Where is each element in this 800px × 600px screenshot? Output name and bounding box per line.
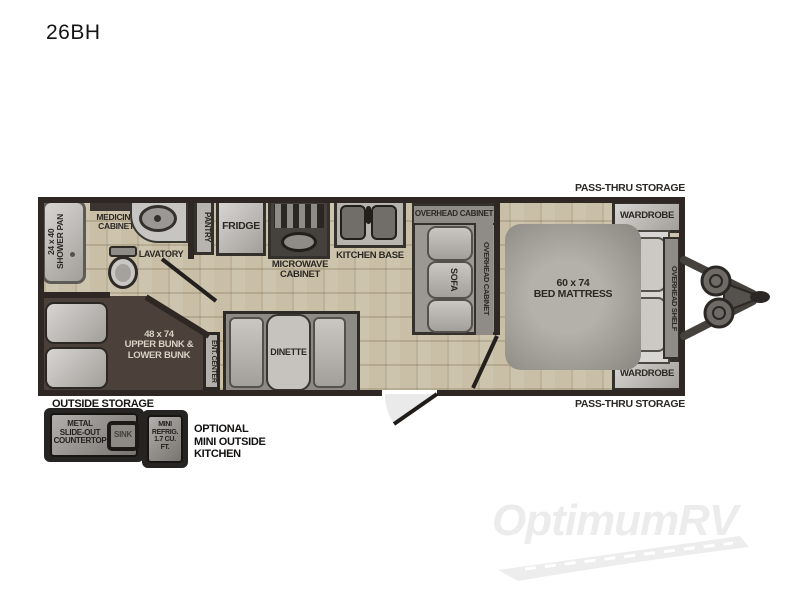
dinette-bench-right <box>313 317 346 388</box>
wardrobe-top-label: WARDROBE <box>612 211 682 221</box>
pantry-label: PANTRY <box>197 203 211 252</box>
bunk-mattress-lower <box>45 347 108 389</box>
wall-bedroom <box>494 197 500 335</box>
ent-center-label: ENT. CENTER <box>206 336 217 386</box>
wall-bottom-right <box>437 390 685 396</box>
hitch-bar-top <box>684 260 753 294</box>
pass-thru-storage-bottom-label: PASS-THRU STORAGE <box>560 399 685 410</box>
wall-right <box>679 197 685 396</box>
mini-refrig-label: MINI REFRIG. 1.7 CU. FT. <box>147 421 183 451</box>
kitchen-sink-right <box>371 205 397 240</box>
watermark-brand: OptimumRV <box>492 496 772 546</box>
bunk-mattress-upper <box>45 302 108 344</box>
outside-kitchen-note: OPTIONAL MINI OUTSIDE KITCHEN <box>194 423 304 461</box>
lavatory-sink-drain <box>154 215 161 222</box>
shower-pan-label: 24 x 40 SHOWER PAN <box>47 206 81 278</box>
kitchen-faucet <box>366 206 371 224</box>
toilet-seat <box>115 264 131 282</box>
floorplan-image: 26BH 24 x 40 SHOWER PAN MEDICINE CABINET… <box>0 0 800 600</box>
kitchen-base-label: KITCHEN BASE <box>330 251 410 261</box>
propane-tank-1 <box>702 267 730 295</box>
wall-bath-bunk <box>38 292 110 298</box>
overhead-cabinet-top-label: OVERHEAD CABINET <box>410 210 498 219</box>
microwave-cabinet-label: MICROWAVE CABINET <box>248 260 352 281</box>
entry-door <box>394 394 437 424</box>
outside-sink-label: SINK <box>107 431 139 440</box>
dinette-bench-left <box>229 317 264 388</box>
entry-door-swing <box>385 394 437 424</box>
sofa-label: SOFA <box>442 252 458 308</box>
hitch-plate <box>724 283 762 312</box>
stove-top <box>274 204 324 228</box>
shower-drain <box>70 252 75 257</box>
wall-top <box>38 197 685 203</box>
pass-thru-storage-top-label: PASS-THRU STORAGE <box>560 183 685 194</box>
wardrobe-bottom-label: WARDROBE <box>612 369 682 379</box>
dinette-label: DINETTE <box>263 348 314 358</box>
overhead-cabinet-side-label: OVERHEAD CABINET <box>477 226 490 332</box>
propane-tank-2 <box>705 299 733 327</box>
model-title: 26BH <box>46 22 101 45</box>
fridge-label: FRIDGE <box>216 221 266 232</box>
lavatory-label: LAVATORY <box>130 250 192 260</box>
outside-countertop-label: METAL SLIDE-OUT COUNTERTOP <box>50 420 110 446</box>
wall-bathroom <box>188 197 194 259</box>
bunk-label: 48 x 74 UPPER BUNK & LOWER BUNK <box>110 330 208 361</box>
bed-label: 60 x 74 BED MATTRESS <box>505 278 641 301</box>
stove-burner <box>281 232 317 252</box>
hitch-coupler <box>750 291 770 303</box>
watermark-road-dashes <box>525 543 733 569</box>
hitch-bar-bottom <box>684 301 753 336</box>
kitchen-sink-left <box>340 205 366 240</box>
wall-bottom-left <box>38 390 382 396</box>
overhead-shelf-label: OVERHEAD SHELF <box>666 241 678 355</box>
